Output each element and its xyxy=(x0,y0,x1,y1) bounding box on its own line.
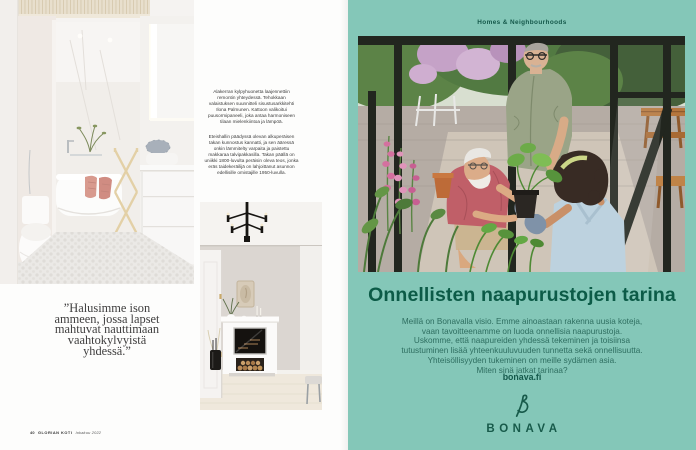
greenhouse-gardening-photo xyxy=(358,36,685,272)
right-page-bonava-ad: Homes & Neighbourhoods xyxy=(348,0,696,450)
left-page: Alakerran kylpyhuonetta laajennettiin re… xyxy=(0,0,348,450)
ad-kicker: Homes & Neighbourhoods xyxy=(348,19,696,26)
ad-body-line: Yhteisöllisyyden tukeminen on meille syd… xyxy=(348,356,696,366)
ad-body-line: vaan tavoitteenamme on luoda onnellisia … xyxy=(348,327,696,337)
bonava-url: bonava.fi xyxy=(348,372,696,382)
bonava-logo: BONAVA xyxy=(348,394,696,437)
fireplace-photo xyxy=(200,202,322,410)
bonava-b-mark-icon xyxy=(513,394,531,417)
magazine-spread: Alakerran kylpyhuonetta laajennettiin re… xyxy=(0,0,696,450)
ad-body-text: Meillä on Bonavalla visio. Emme ainoasta… xyxy=(348,317,696,375)
bonava-wordmark: BONAVA xyxy=(486,423,561,435)
caption-column: Alakerran kylpyhuonetta laajennettiin re… xyxy=(204,89,299,176)
page-number: 40 xyxy=(30,430,35,435)
quote-line: yhdessä.” xyxy=(33,346,181,357)
issue-date: lokakuu 2022 xyxy=(76,430,102,435)
ad-body-line: Uskomme, että naapureiden yhdessä tekemi… xyxy=(348,336,696,346)
ad-body-line: tutustuminen lisää yhteenkuuluvuuden tun… xyxy=(348,346,696,356)
page-footer: 40 GLORIAN KOTI lokakuu 2022 xyxy=(30,430,101,435)
ad-body-line: Meillä on Bonavalla visio. Emme ainoasta… xyxy=(348,317,696,327)
caption-paragraph: Alakerran kylpyhuonetta laajennettiin re… xyxy=(204,89,299,126)
caption-paragraph: Eteishallin päädyssä olevan alkuperäisen… xyxy=(204,134,299,177)
ad-heading: Onnellisten naapurustojen tarina xyxy=(348,284,696,307)
pull-quote: ”Halusimme ison ammeen, jossa lapset mah… xyxy=(33,303,181,357)
magazine-name: GLORIAN KOTI xyxy=(38,430,72,435)
bathroom-photo xyxy=(0,0,194,284)
